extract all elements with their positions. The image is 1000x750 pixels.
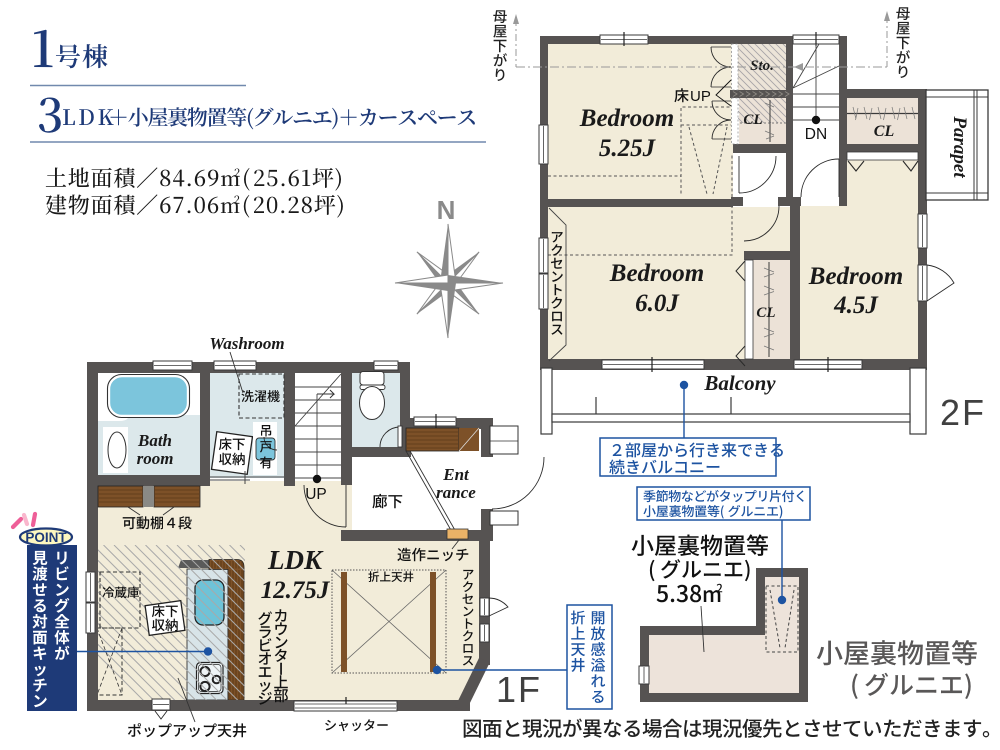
svg-text:2F: 2F: [940, 392, 986, 433]
svg-text:Bedroom: Bedroom: [609, 260, 704, 287]
svg-text:Bath: Bath: [137, 431, 172, 450]
svg-text:N: N: [437, 195, 456, 225]
svg-text:rance: rance: [436, 483, 476, 502]
svg-text:Washroom: Washroom: [209, 334, 284, 353]
svg-text:CL: CL: [756, 305, 775, 321]
svg-text:Sto.: Sto.: [750, 58, 774, 74]
svg-text:LDK: LDK: [267, 545, 324, 575]
svg-text:room: room: [137, 449, 174, 468]
svg-text:Parapet: Parapet: [949, 115, 970, 178]
svg-text:12.75J: 12.75J: [261, 577, 331, 604]
svg-text:Bedroom: Bedroom: [808, 263, 903, 290]
svg-text:Ent: Ent: [442, 465, 470, 484]
svg-text:Bedroom: Bedroom: [579, 105, 674, 132]
svg-text:UP: UP: [690, 88, 711, 105]
svg-text:1F: 1F: [496, 669, 542, 710]
svg-text:DN: DN: [805, 126, 827, 143]
svg-text:Balcony: Balcony: [703, 371, 776, 395]
svg-text:POINT: POINT: [25, 530, 67, 545]
svg-text:6.0J: 6.0J: [635, 290, 680, 317]
svg-text:CL: CL: [874, 123, 895, 140]
svg-text:4.5J: 4.5J: [833, 292, 879, 319]
svg-text:5.25J: 5.25J: [599, 135, 657, 162]
svg-text:CL: CL: [743, 112, 762, 128]
svg-text:UP: UP: [305, 486, 327, 503]
